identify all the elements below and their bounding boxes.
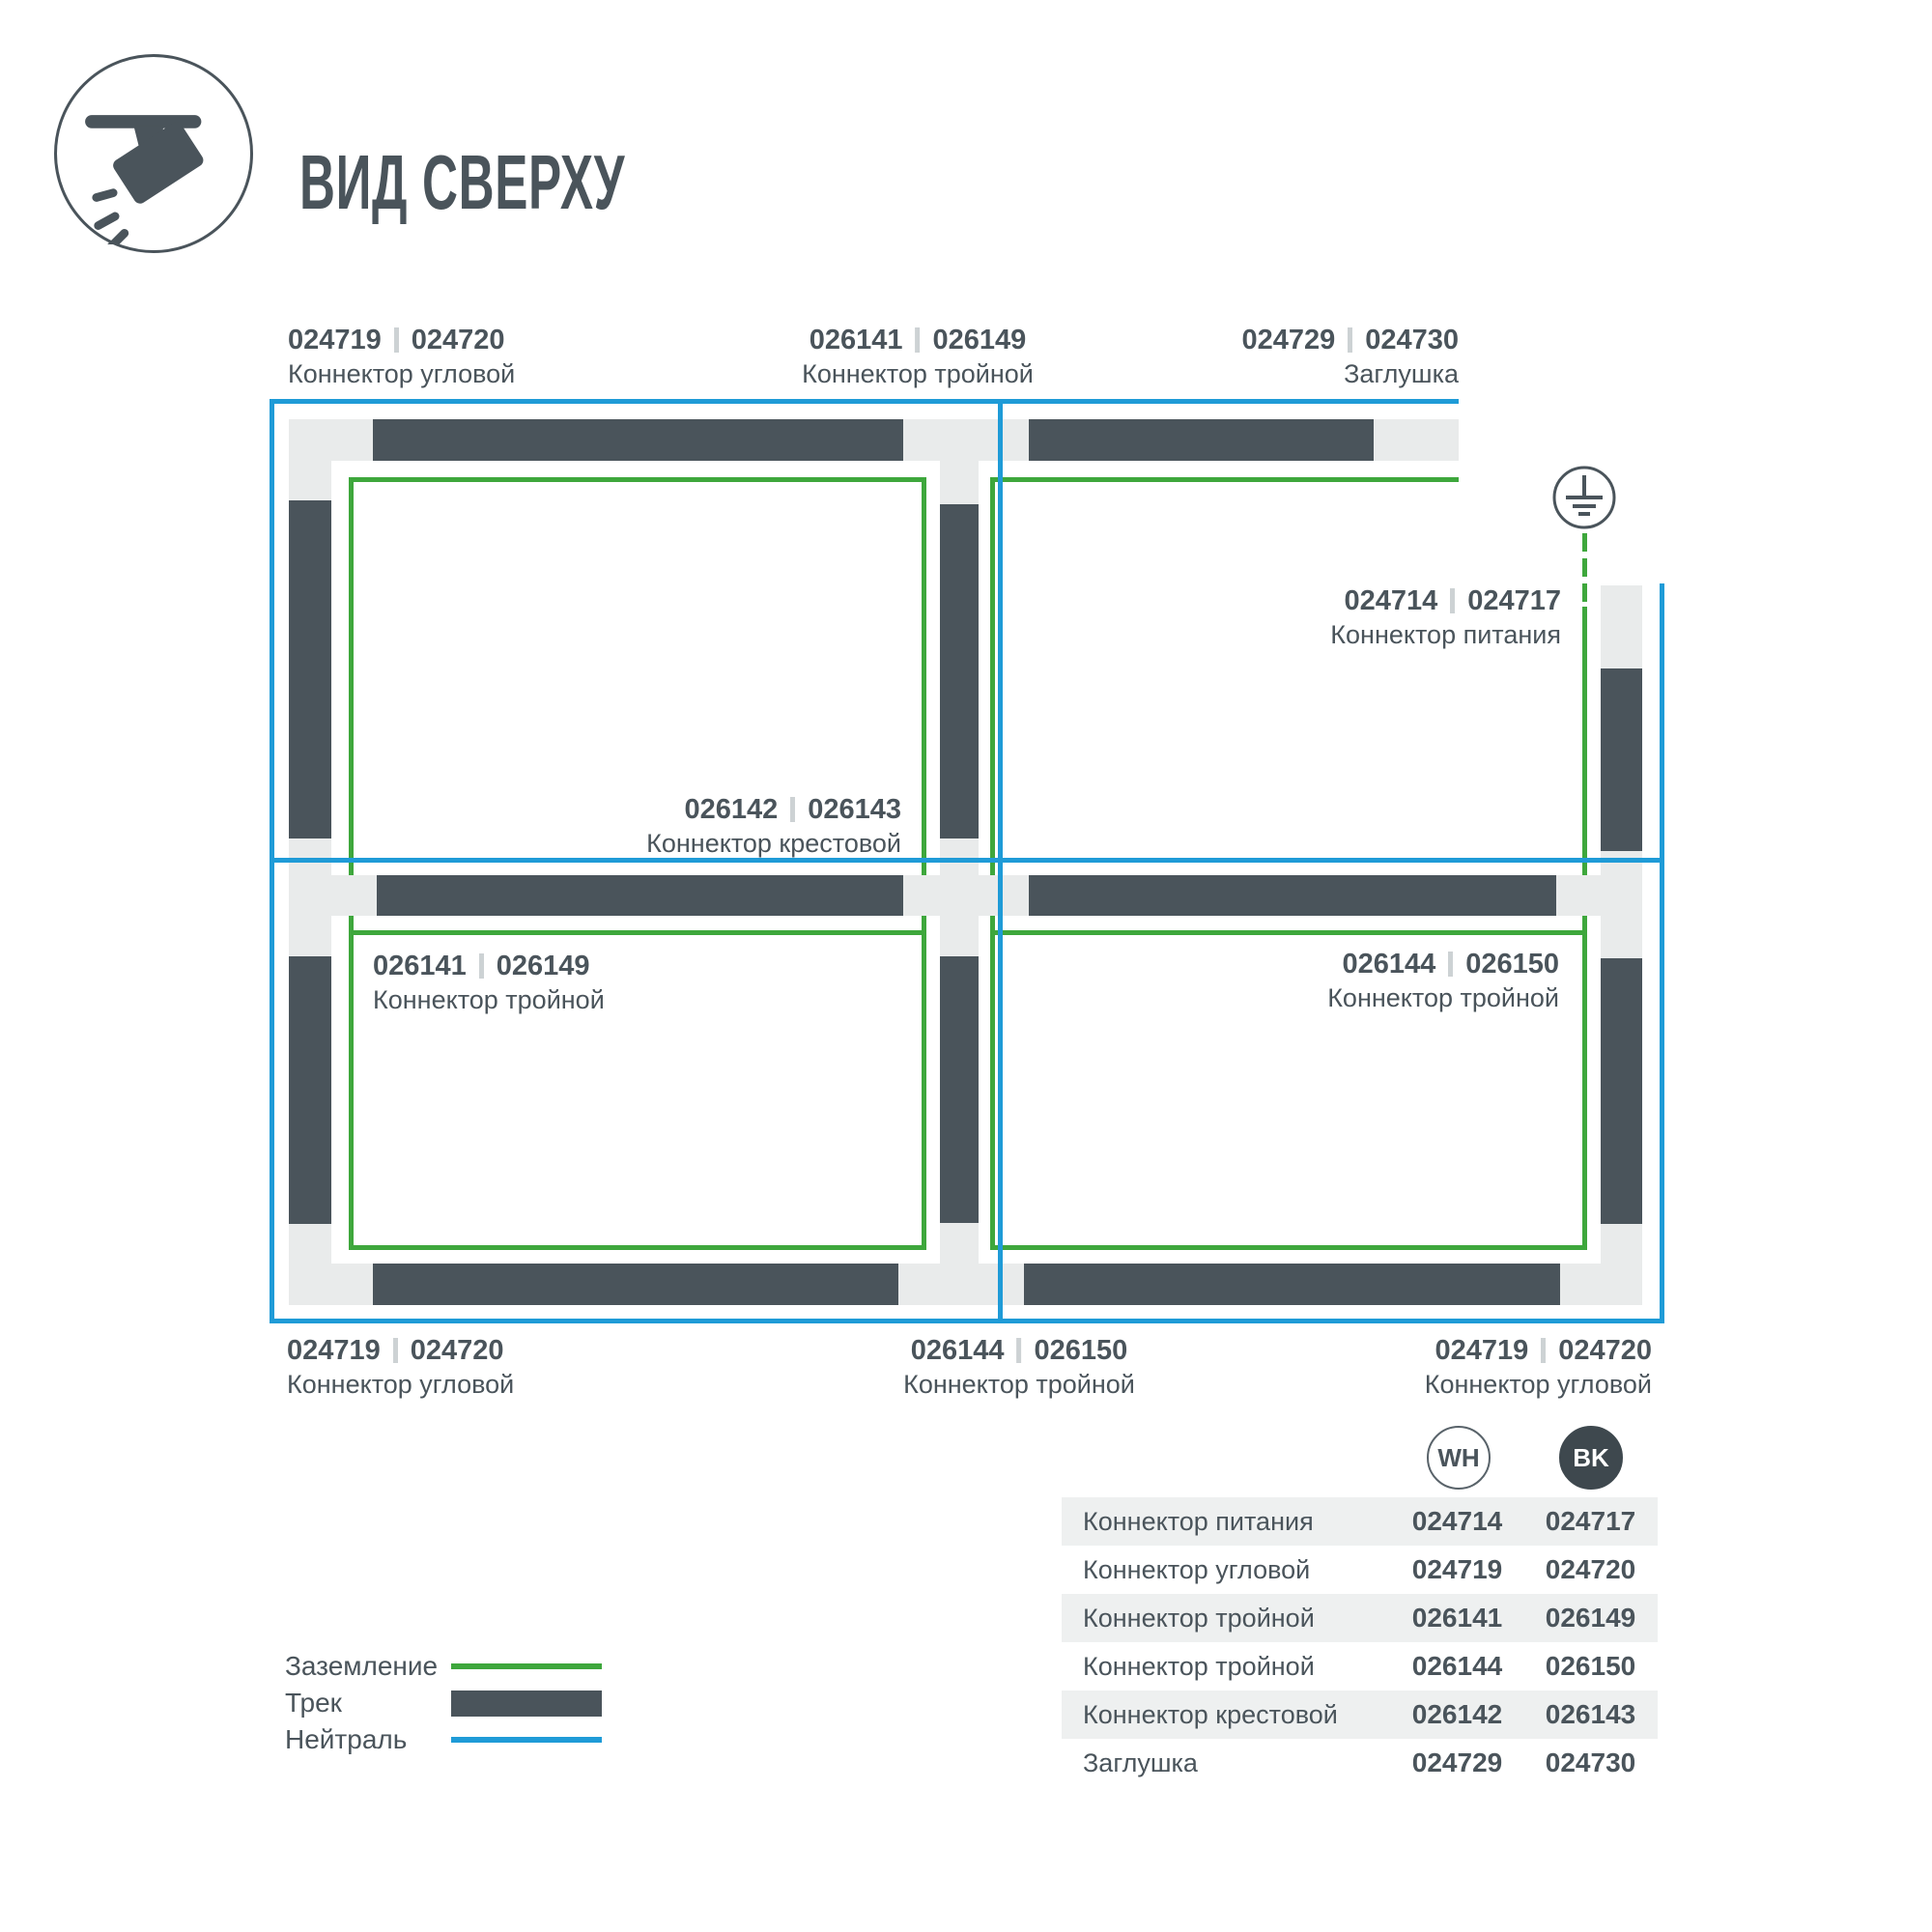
connector-cross-piece <box>940 838 979 956</box>
separator <box>1348 327 1352 353</box>
connector-tee-piece <box>903 419 1029 461</box>
part-number-bk: 026149 <box>497 951 590 981</box>
ground-line-swatch <box>451 1663 602 1669</box>
connector-tee-piece <box>1601 851 1642 958</box>
track-segment <box>373 419 903 461</box>
part-numbers: 026142026143 <box>684 794 901 825</box>
ground-line <box>922 477 926 1250</box>
part-number-bk: 026150 <box>1465 949 1559 980</box>
label-corner-connector-bottom-right: 024719024720 Коннектор угловой <box>1425 1335 1652 1399</box>
color-wh-badge: WH <box>1427 1426 1491 1490</box>
neutral-line <box>270 858 1664 863</box>
part-number-bk: 024720 <box>411 1335 504 1366</box>
part-name: Коннектор угловой <box>287 1370 514 1399</box>
page-title: ВИД СВЕРХУ <box>299 138 625 227</box>
part-number-bk: 026143 <box>808 794 901 825</box>
track-segment <box>289 956 331 1224</box>
separator <box>394 327 399 353</box>
part-number-wh: 026141 <box>1391 1603 1523 1634</box>
connector-tee-piece <box>1556 875 1601 916</box>
part-number-bk: 024720 <box>1558 1335 1652 1366</box>
part-number-wh: 024714 <box>1391 1506 1523 1537</box>
separator <box>1541 1338 1546 1363</box>
separator <box>790 797 795 822</box>
label-tee-connector-top: 026141026149 Коннектор тройной <box>802 325 1034 388</box>
table-row: Коннектор тройной 026141 026149 <box>1062 1594 1658 1642</box>
part-number-wh: 024719 <box>288 325 382 355</box>
track-spotlight-glyph <box>57 57 244 244</box>
neutral-line <box>270 399 1459 404</box>
ground-line <box>349 1245 926 1250</box>
label-end-cap: 024729024730 Заглушка <box>1241 325 1459 388</box>
part-number-wh: 026144 <box>1342 949 1435 980</box>
label-corner-connector-bottom-left: 024719024720 Коннектор угловой <box>287 1335 514 1399</box>
part-number-bk: 026149 <box>1523 1603 1658 1634</box>
track-spotlight-icon <box>54 54 253 253</box>
power-connector-piece <box>1601 585 1642 668</box>
legend-label: Заземление <box>285 1651 451 1682</box>
part-name: Коннектор тройной <box>802 359 1034 388</box>
table-row: Коннектор питания 024714 024717 <box>1062 1497 1658 1546</box>
part-name: Коннектор крестовой <box>1062 1700 1391 1730</box>
track-segment <box>1029 419 1374 461</box>
part-number-wh: 024729 <box>1241 325 1335 355</box>
legend-item-track: Трек <box>285 1685 602 1721</box>
connector-tee-piece <box>331 875 377 916</box>
neutral-line <box>1660 583 1664 1323</box>
track-segment <box>289 500 331 838</box>
part-name: Коннектор крестовой <box>646 829 901 858</box>
ground-line <box>990 477 1459 482</box>
part-name: Коннектор питания <box>1062 1507 1391 1537</box>
part-numbers: 026141026149 <box>373 951 590 981</box>
part-name: Коннектор тройной <box>1327 983 1559 1012</box>
connector-tee-piece <box>898 1264 1024 1305</box>
separator <box>915 327 920 353</box>
table-row: Коннектор крестовой 026142 026143 <box>1062 1690 1658 1739</box>
label-power-connector: 024714024717 Коннектор питания <box>1330 585 1561 649</box>
connector-tee-piece <box>289 838 331 956</box>
ground-line <box>1582 607 1587 1250</box>
ground-line <box>990 1245 1587 1250</box>
label-cross-connector: 026142026143 Коннектор крестовой <box>646 794 901 858</box>
track-swatch <box>451 1690 602 1717</box>
part-number-wh: 026144 <box>1391 1651 1523 1682</box>
connector-corner-piece <box>1560 1264 1642 1305</box>
track-segment <box>940 504 979 838</box>
part-number-wh: 024714 <box>1344 585 1437 616</box>
legend-label: Нейтраль <box>285 1724 451 1755</box>
ground-line <box>349 477 354 1250</box>
part-number-bk: 024730 <box>1523 1747 1658 1778</box>
part-numbers: 024719024720 <box>1435 1335 1652 1366</box>
legend-label: Трек <box>285 1688 451 1719</box>
part-number-bk: 024730 <box>1365 325 1459 355</box>
part-numbers: 026144026150 <box>911 1335 1128 1366</box>
connector-tee-piece <box>940 461 979 504</box>
part-name: Коннектор тройной <box>373 985 605 1014</box>
ground-line <box>990 930 1587 935</box>
part-number-wh: 026144 <box>911 1335 1005 1366</box>
connector-corner-piece <box>289 1264 373 1305</box>
part-number-wh: 024719 <box>287 1335 381 1366</box>
ground-feed-dashed-line <box>1582 533 1587 603</box>
parts-table: WH BK Коннектор питания 024714 024717 Ко… <box>1062 1497 1658 1787</box>
color-bk-badge: BK <box>1559 1426 1623 1490</box>
label-corner-connector-top-left: 024719024720 Коннектор угловой <box>288 325 515 388</box>
part-numbers: 024729024730 <box>1241 325 1459 355</box>
track-segment <box>1029 875 1556 916</box>
part-number-bk: 024720 <box>1523 1554 1658 1585</box>
ground-line <box>349 477 926 482</box>
part-name: Коннектор тройной <box>1062 1604 1391 1634</box>
part-numbers: 024719024720 <box>287 1335 504 1366</box>
track-segment <box>1601 958 1642 1224</box>
label-tee-connector-bottom: 026144026150 Коннектор тройной <box>903 1335 1135 1399</box>
legend-item-neutral: Нейтраль <box>285 1721 602 1758</box>
separator <box>1450 588 1455 613</box>
part-number-wh: 026141 <box>373 951 467 981</box>
track-segment <box>377 875 903 916</box>
table-row: Коннектор угловой 024719 024720 <box>1062 1546 1658 1594</box>
part-number-bk: 024720 <box>412 325 505 355</box>
part-number-wh: 024719 <box>1391 1554 1523 1585</box>
neutral-line <box>270 1319 1664 1323</box>
track-segment <box>373 1264 898 1305</box>
part-number-bk: 026143 <box>1523 1699 1658 1730</box>
separator <box>479 953 484 979</box>
legend: Заземление Трек Нейтраль <box>285 1648 602 1758</box>
table-row: Заглушка 024729 024730 <box>1062 1739 1658 1787</box>
part-number-bk: 024717 <box>1467 585 1561 616</box>
ground-line <box>990 477 995 1250</box>
part-name: Заглушка <box>1344 359 1459 388</box>
part-number-bk: 026150 <box>1523 1651 1658 1682</box>
separator <box>1448 952 1453 977</box>
end-cap-piece <box>1374 419 1459 461</box>
ground-line <box>349 930 926 935</box>
neutral-line-swatch <box>451 1737 602 1743</box>
earth-ground-icon <box>1550 464 1618 531</box>
track-segment <box>1601 668 1642 851</box>
label-tee-connector-right: 026144026150 Коннектор тройной <box>1327 949 1559 1012</box>
legend-item-ground: Заземление <box>285 1648 602 1685</box>
track-segment <box>1024 1264 1560 1305</box>
part-name: Коннектор питания <box>1330 620 1561 649</box>
separator <box>1016 1338 1021 1363</box>
part-name: Коннектор угловой <box>288 359 515 388</box>
part-number-wh: 026141 <box>810 325 903 355</box>
part-name: Коннектор тройной <box>903 1370 1135 1399</box>
part-number-bk: 024717 <box>1523 1506 1658 1537</box>
part-name: Коннектор угловой <box>1062 1555 1391 1585</box>
bk-label: BK <box>1573 1443 1609 1473</box>
connector-corner-piece <box>289 419 331 500</box>
part-name: Коннектор угловой <box>1425 1370 1652 1399</box>
wh-label: WH <box>1437 1443 1479 1473</box>
part-number-wh: 024729 <box>1391 1747 1523 1778</box>
part-numbers: 024719024720 <box>288 325 505 355</box>
part-number-bk: 026150 <box>1034 1335 1127 1366</box>
part-number-wh: 026142 <box>684 794 778 825</box>
separator <box>393 1338 398 1363</box>
track-segment <box>940 956 979 1223</box>
part-numbers: 024714024717 <box>1344 585 1561 616</box>
part-name: Коннектор тройной <box>1062 1652 1391 1682</box>
page: ВИД СВЕРХУ <box>0 0 1932 1932</box>
table-row: Коннектор тройной 026144 026150 <box>1062 1642 1658 1690</box>
part-numbers: 026141026149 <box>810 325 1027 355</box>
part-number-bk: 026149 <box>932 325 1026 355</box>
part-numbers: 026144026150 <box>1342 949 1559 980</box>
part-number-wh: 024719 <box>1435 1335 1528 1366</box>
label-tee-connector-left: 026141026149 Коннектор тройной <box>373 951 605 1014</box>
part-number-wh: 026142 <box>1391 1699 1523 1730</box>
part-name: Заглушка <box>1062 1748 1391 1778</box>
connector-tee-piece <box>940 1223 979 1264</box>
